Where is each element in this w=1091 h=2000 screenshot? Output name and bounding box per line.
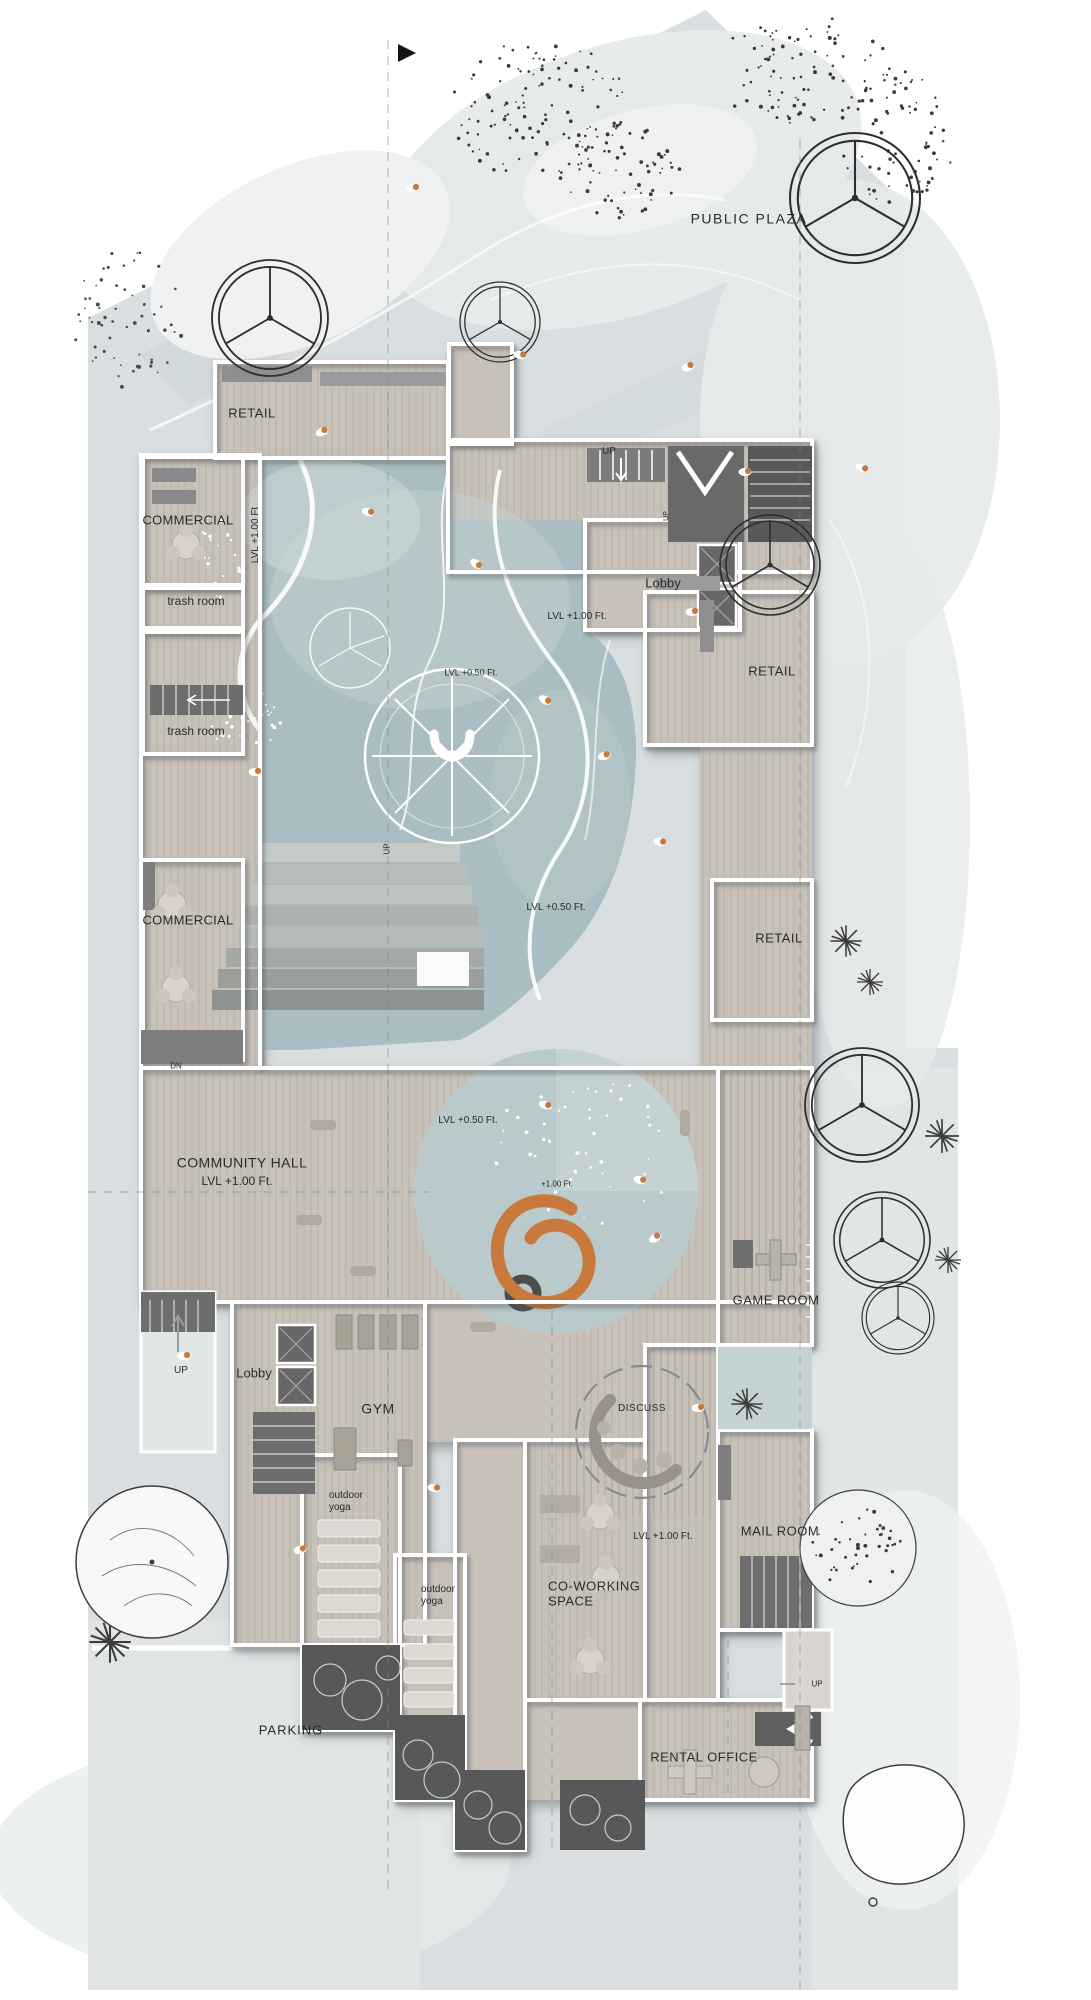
floor-plan-page: PUBLIC PLAZARETAILCOMMERCIALLVL +1.00 Ft…	[0, 0, 1091, 2000]
circular-plaza	[414, 1049, 698, 1333]
floor-plan-drawing	[0, 0, 1091, 2000]
courtyard-tree	[365, 669, 539, 843]
north-arrow-icon	[398, 44, 416, 62]
leafy-tree	[76, 1486, 228, 1638]
leafy-tree	[800, 1490, 916, 1606]
